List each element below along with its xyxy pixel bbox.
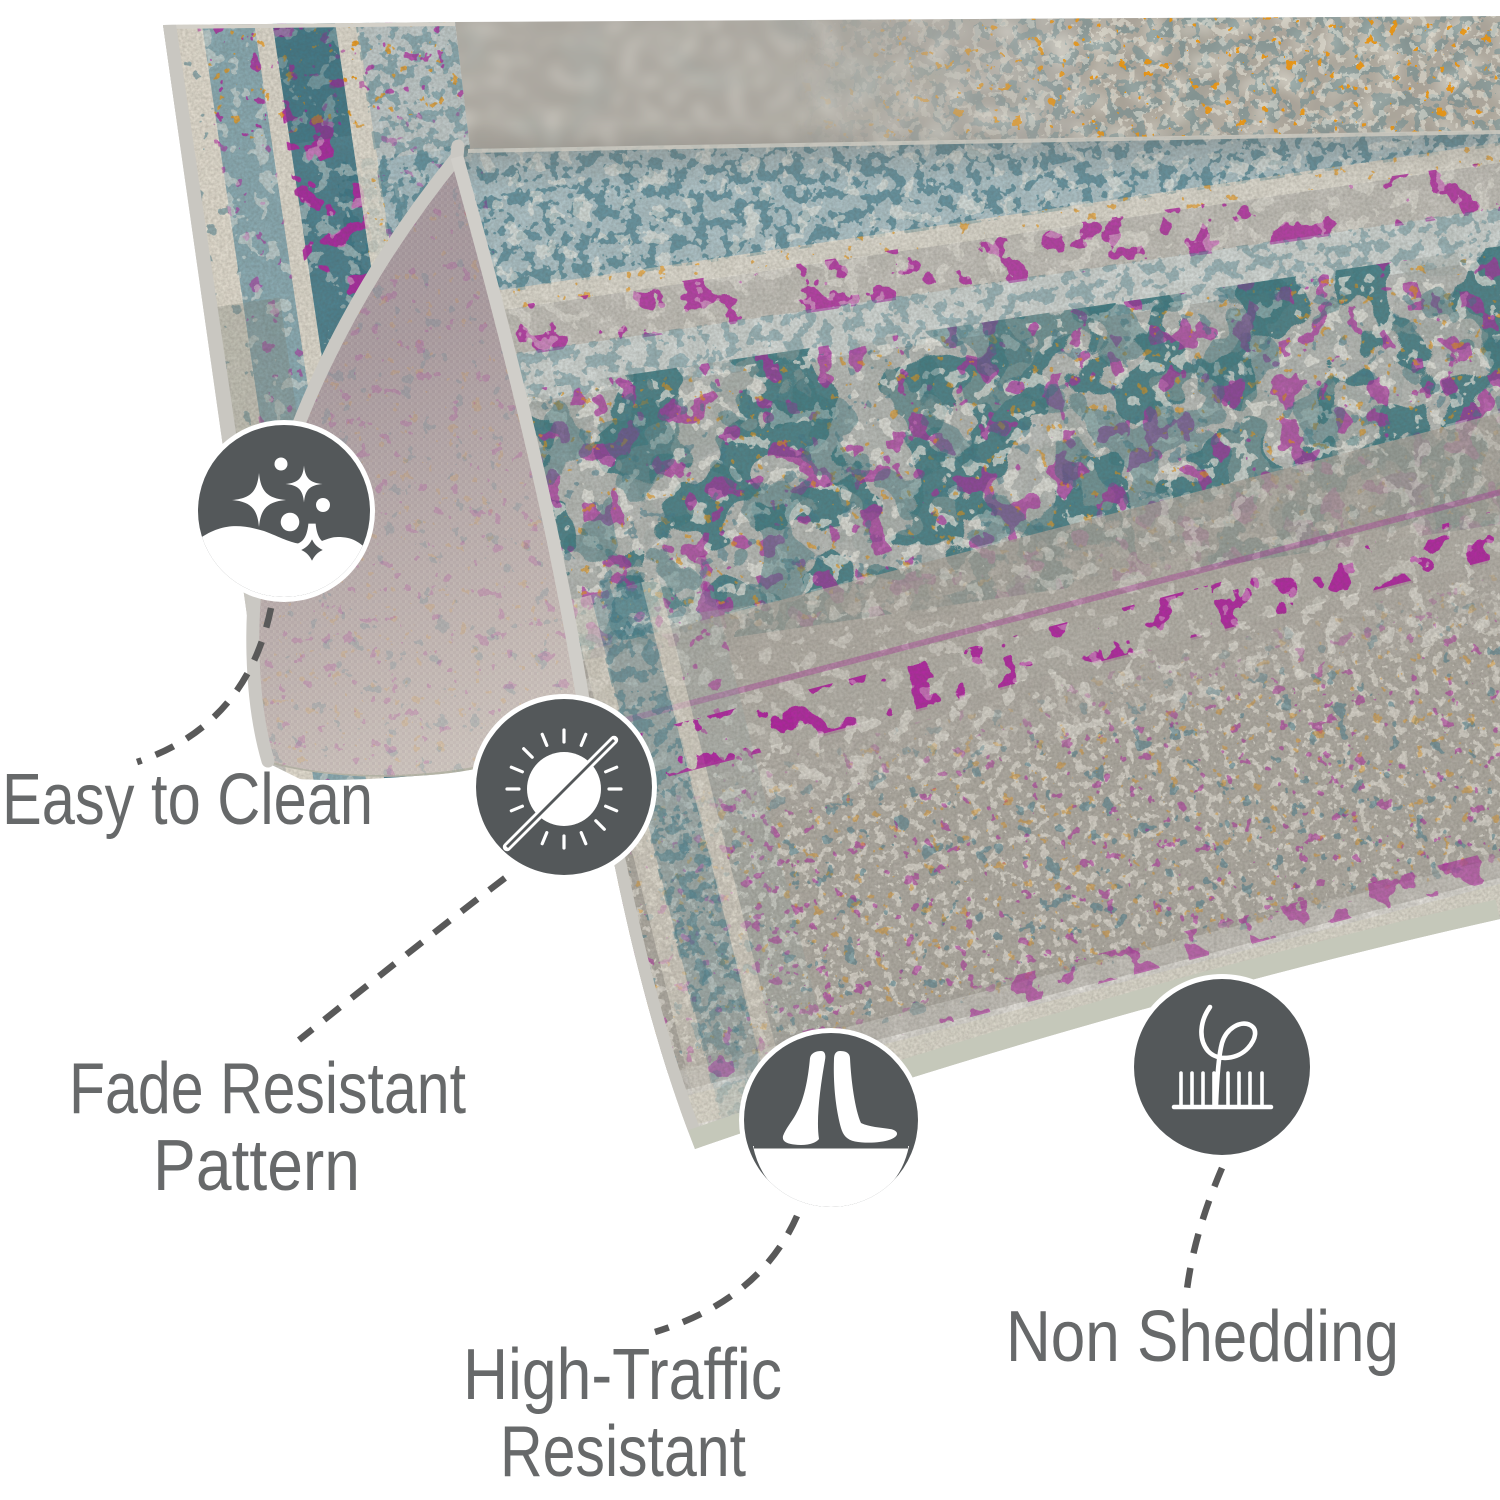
svg-text:Fade Resistant: Fade Resistant: [69, 1049, 466, 1129]
svg-text:Non Shedding: Non Shedding: [1006, 1297, 1399, 1377]
svg-text:Resistant: Resistant: [500, 1412, 746, 1492]
svg-text:Easy to Clean: Easy to Clean: [2, 760, 373, 840]
svg-text:High-Traffic: High-Traffic: [463, 1335, 782, 1415]
svg-text:Pattern: Pattern: [153, 1126, 360, 1206]
